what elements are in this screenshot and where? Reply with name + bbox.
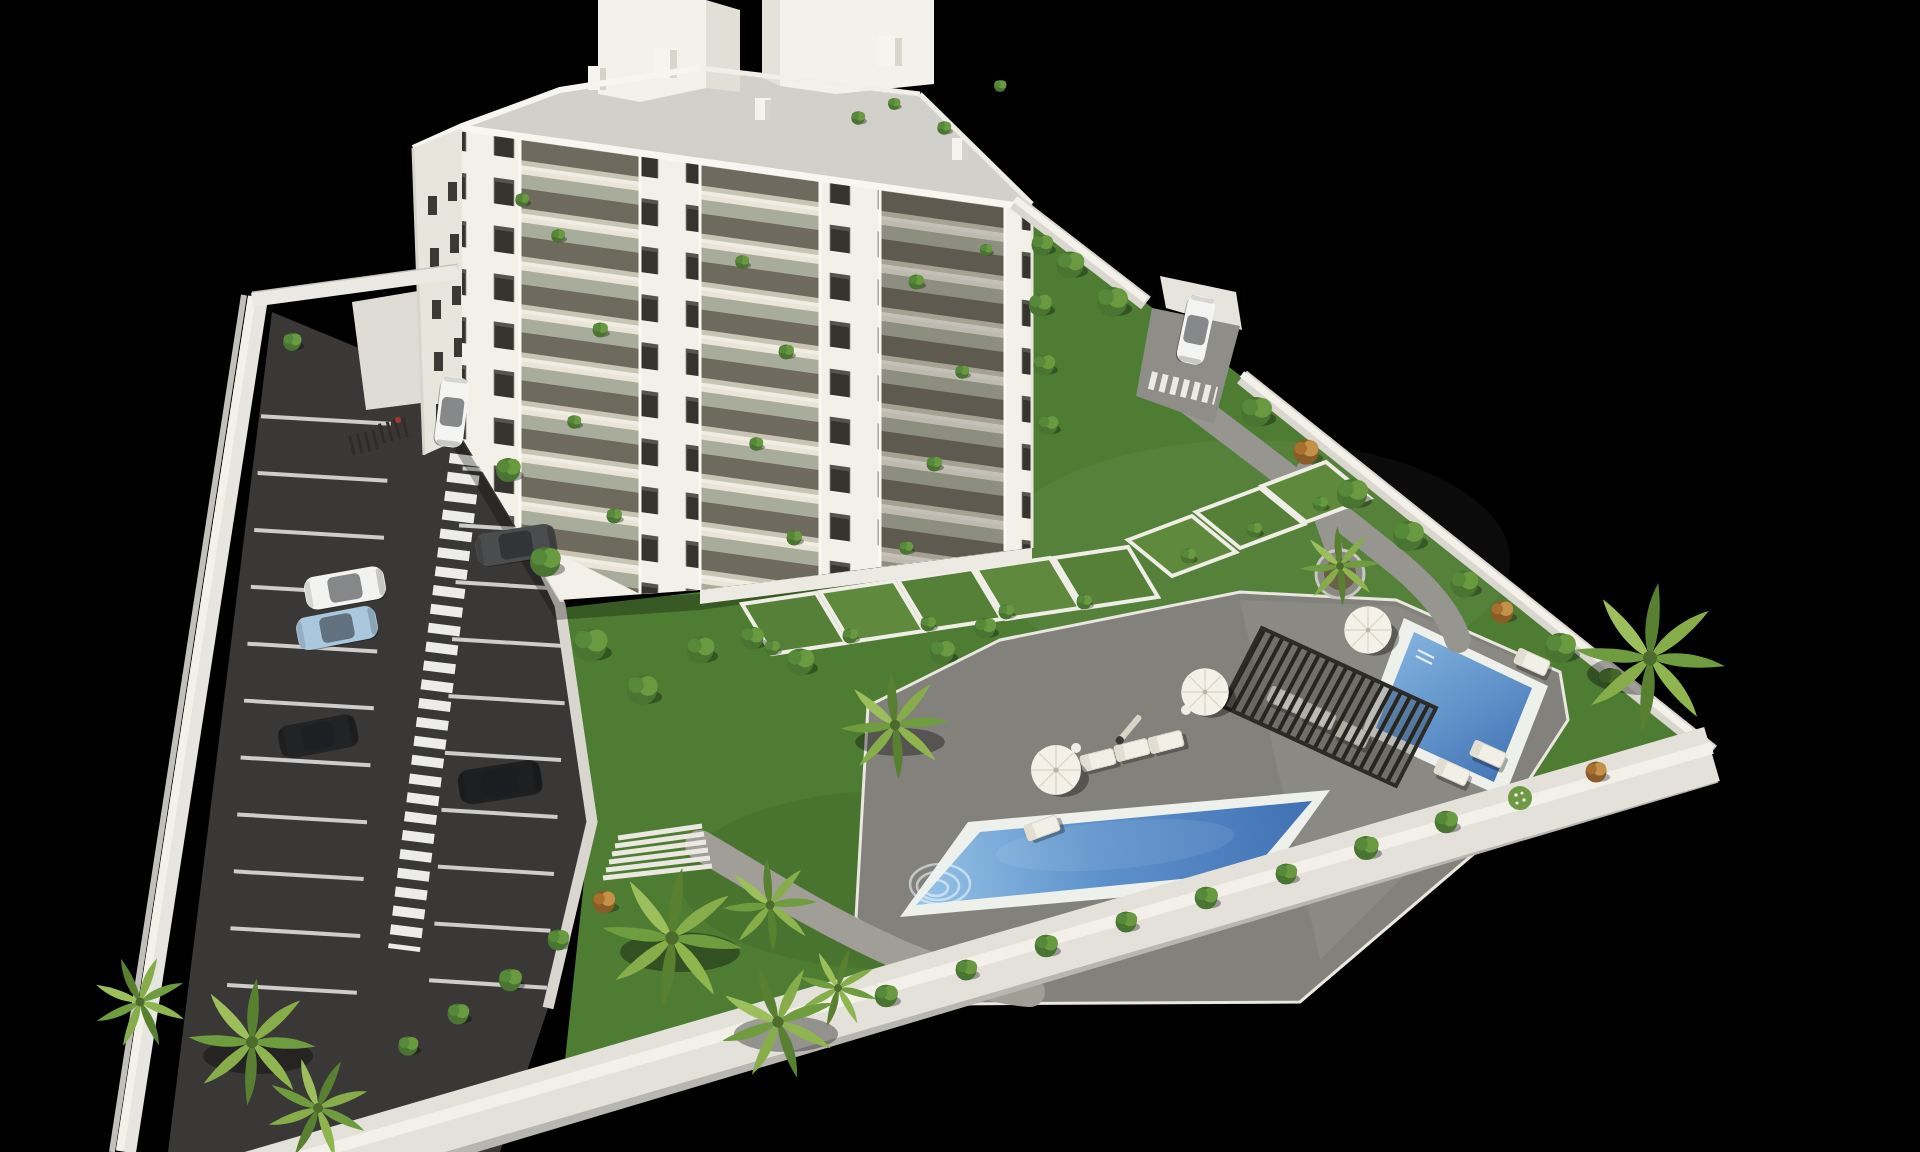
- penthouse: [598, 0, 740, 102]
- window-column: [1005, 204, 1032, 551]
- window-column: [820, 178, 880, 575]
- site-render: [0, 0, 1920, 1152]
- parking-sign: [395, 417, 401, 423]
- balcony-bay: [700, 161, 820, 590]
- balcony-bay-shade: [880, 187, 1005, 567]
- render-stage: [0, 0, 1920, 1152]
- window-column: [640, 153, 700, 594]
